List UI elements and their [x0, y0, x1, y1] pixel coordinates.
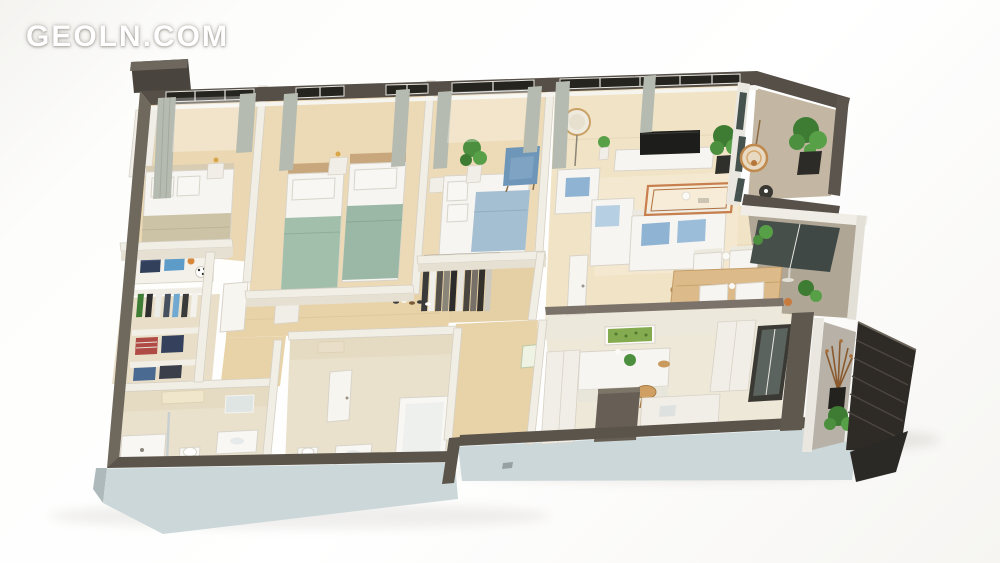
sheer-curtain [447, 89, 528, 143]
pillow [641, 222, 670, 246]
wood-bowl [658, 361, 670, 368]
plant-pot [797, 151, 822, 175]
pillow [447, 181, 468, 201]
folded-clothes [159, 365, 182, 379]
bath-art [162, 390, 204, 404]
small-plant [598, 136, 610, 148]
lamp [336, 152, 341, 157]
pillow [595, 205, 620, 227]
coffee-table [645, 183, 734, 215]
pillow [565, 177, 590, 197]
floor-plan-render [0, 0, 1000, 563]
door-leaf [327, 370, 352, 422]
nightstand [207, 163, 224, 179]
flower-pot [784, 298, 792, 306]
plinth-mark [502, 462, 513, 469]
folded-clothes [133, 367, 156, 381]
nightstand [429, 177, 444, 193]
pendant-lamp [722, 252, 730, 260]
watermark-logo: GEOLN.COM [26, 20, 229, 54]
plant-pot [828, 387, 846, 409]
lamp [214, 158, 219, 163]
watermark-text: GEOLN.COM [26, 20, 229, 53]
pillow [292, 178, 335, 200]
bath-art [318, 341, 344, 353]
screenshot-canvas: GEOLN.COM [0, 0, 1000, 563]
kitchen-island [578, 348, 670, 390]
pillow [354, 168, 397, 190]
hanging-chair [741, 145, 767, 171]
pillow [447, 204, 468, 222]
pillow [177, 176, 200, 196]
mirror [225, 395, 254, 413]
nightstand [328, 157, 348, 175]
sheer-curtain [172, 96, 240, 152]
pillow [677, 219, 706, 243]
island-plant [624, 354, 636, 366]
folded-clothes [135, 337, 158, 355]
door-leaf [220, 282, 248, 332]
plant-pot [466, 165, 482, 183]
folded-clothes [161, 335, 184, 353]
sink [659, 405, 676, 417]
